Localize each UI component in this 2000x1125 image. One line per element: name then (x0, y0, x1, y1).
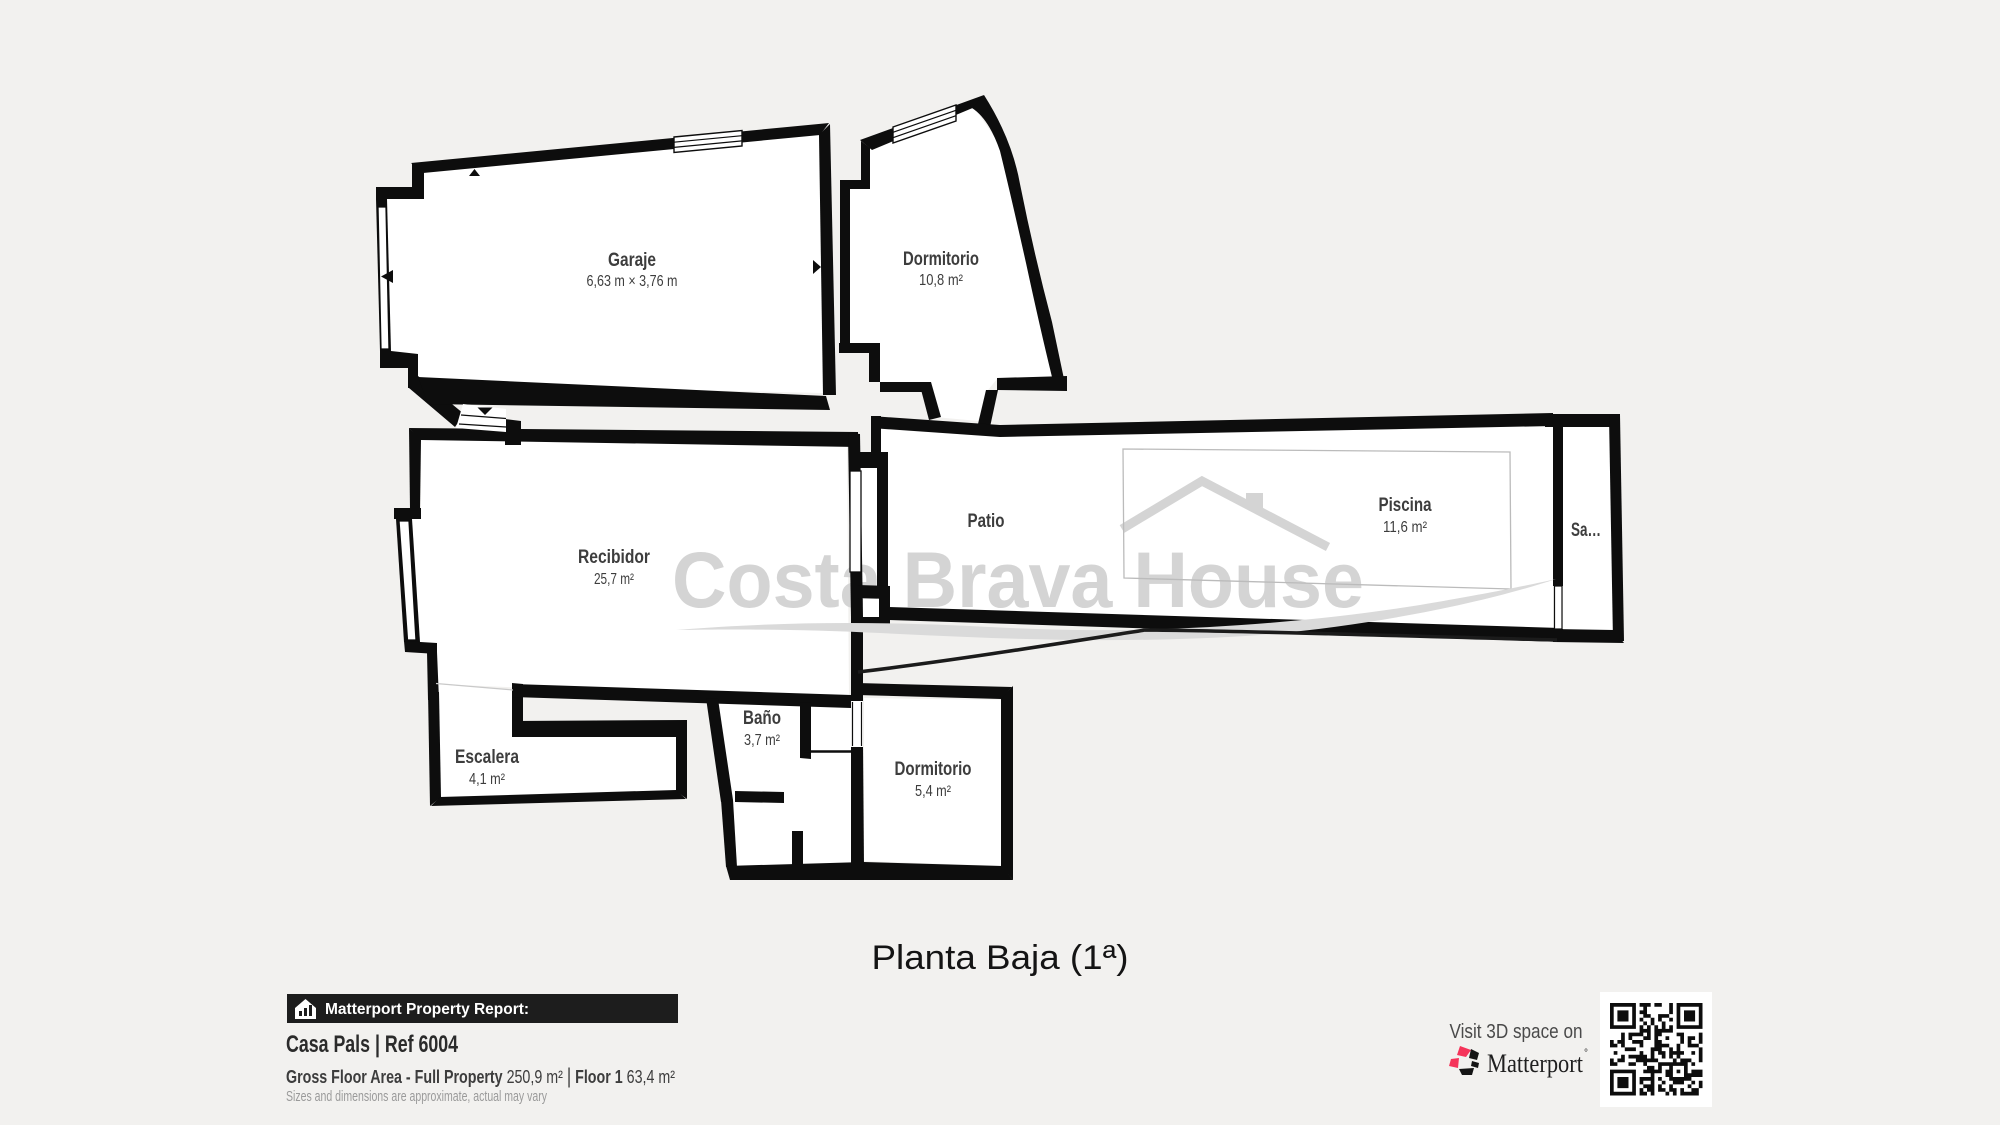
svg-text:Matterport: Matterport (1487, 1049, 1584, 1078)
svg-text:Recibidor: Recibidor (578, 546, 650, 568)
svg-text:Sa…: Sa… (1571, 519, 1601, 541)
svg-text:Sizes and dimensions are appro: Sizes and dimensions are approximate, ac… (286, 1089, 548, 1105)
svg-text:Costa Brava House: Costa Brava House (672, 535, 1364, 624)
svg-text:Visit 3D space on: Visit 3D space on (1450, 1021, 1583, 1043)
svg-text:6,63 m × 3,76 m: 6,63 m × 3,76 m (587, 273, 678, 290)
svg-text:Piscina: Piscina (1379, 494, 1432, 516)
svg-text:Escalera: Escalera (455, 746, 519, 768)
svg-text:4,1 m²: 4,1 m² (469, 771, 505, 788)
svg-text:5,4 m²: 5,4 m² (915, 783, 951, 800)
svg-text:Casa Pals | Ref 6004: Casa Pals | Ref 6004 (286, 1031, 458, 1058)
svg-text:Baño: Baño (743, 707, 781, 729)
svg-text:Matterport Property Report:: Matterport Property Report: (325, 1001, 529, 1018)
svg-text:11,6 m²: 11,6 m² (1383, 519, 1427, 536)
svg-text:3,7 m²: 3,7 m² (744, 732, 780, 749)
svg-text:10,8 m²: 10,8 m² (919, 272, 963, 289)
svg-text:Dormitorio: Dormitorio (895, 758, 972, 780)
svg-text:Gross Floor Area - Full Proper: Gross Floor Area - Full Property 250,9 m… (286, 1065, 675, 1088)
svg-text:Garaje: Garaje (608, 249, 656, 271)
svg-text:25,7 m²: 25,7 m² (594, 571, 634, 588)
svg-text:Planta Baja (1ª): Planta Baja (1ª) (872, 939, 1129, 977)
svg-text:Patio: Patio (968, 510, 1005, 532)
svg-text:Dormitorio: Dormitorio (903, 248, 979, 270)
svg-text:°: ° (1584, 1048, 1588, 1059)
